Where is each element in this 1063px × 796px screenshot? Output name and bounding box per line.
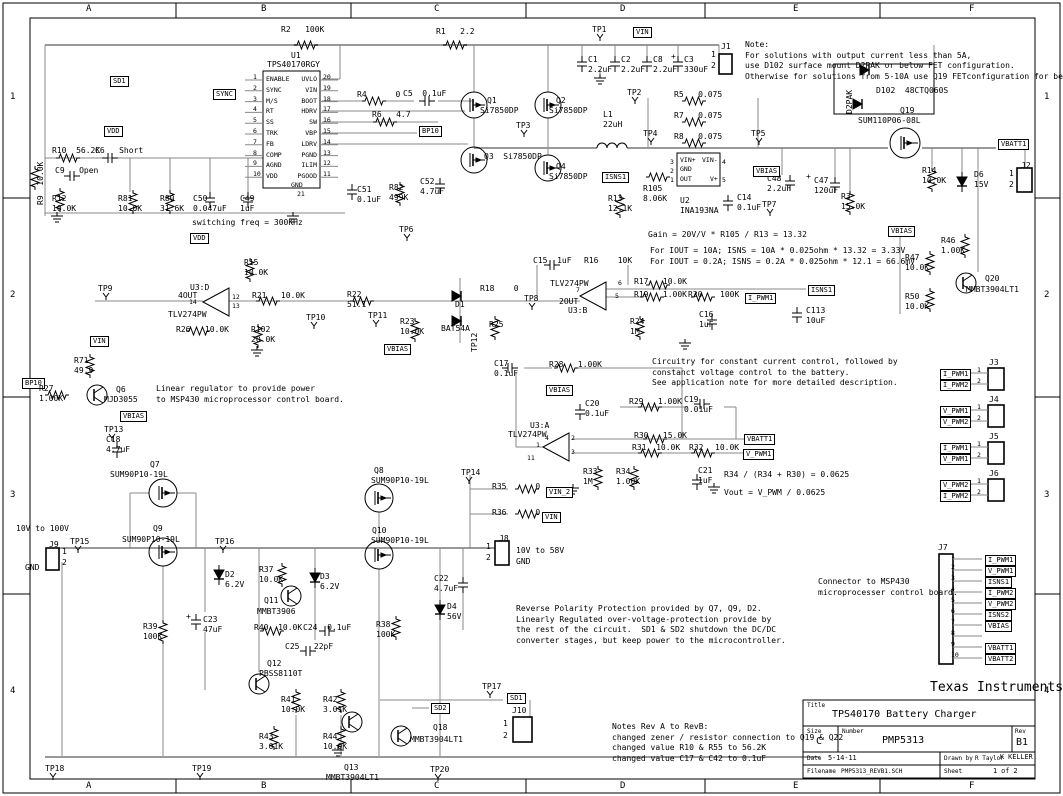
annotation-note: 10V to 58V GND [516, 546, 564, 567]
component-label: R18 0 [480, 284, 519, 294]
component-label: 3 [670, 159, 674, 166]
checked-by: K KELLER [1000, 753, 1033, 761]
component-label: Q2 [556, 96, 566, 106]
number-value: PMP5313 [882, 735, 924, 746]
annotation-note: Reverse Polarity Protection provided by … [516, 604, 786, 646]
frame-col-A: A [86, 4, 91, 14]
component-label: SUM90P10-19L [371, 536, 429, 546]
net-flag-vdd: VDD [190, 233, 209, 244]
component-label: Si7850DP [549, 106, 588, 116]
net-flag-bp10: BP10 [419, 126, 442, 137]
j4-pin-num: 2 [977, 415, 981, 422]
component-label: R3 15.0K [841, 192, 865, 211]
component-label: + [186, 612, 191, 622]
title-label: Title [807, 702, 825, 709]
annotation-note: Vout = V_PWM / 0.0625 [724, 488, 825, 499]
component-label: R2 100K [281, 25, 324, 35]
annotation-note: Circuitry for constant current control, … [652, 357, 898, 389]
net-flag-i_pwm2: I_PWM2 [940, 491, 971, 502]
component-label: 1 [503, 719, 508, 729]
component-label: C52 4.7uF [420, 177, 444, 196]
j7-pin-num: 5 [951, 597, 955, 604]
frame-col-D: D [620, 4, 625, 14]
component-label: R10 56.2K [52, 146, 100, 156]
component-label: 12 [232, 294, 240, 301]
annotation-note: GND [25, 563, 39, 574]
frame-row-4: 4 [10, 686, 15, 696]
component-label: D4 56V [447, 602, 461, 621]
annotation-note: Connector to MSP430 microprocesser contr… [818, 577, 958, 598]
component-label: C24 0.1uF [303, 623, 351, 633]
component-label: Q12 [267, 659, 281, 669]
component-label: SUM90P10-19L [122, 535, 180, 545]
testpoint-tp17: TP17 [482, 682, 501, 692]
component-label: R102 20.0K [251, 325, 275, 344]
component-label: + [671, 52, 676, 62]
component-label: BAT54A [441, 324, 470, 334]
component-label: Si7850DP [480, 106, 519, 116]
u1-pin-num: 5 [253, 117, 257, 124]
net-flag-vbias: VBIAS [985, 621, 1012, 632]
component-label: D102 48CTQ060S [876, 86, 948, 96]
component-label: 3 [571, 449, 575, 456]
connector-ref-j3: J3 [989, 358, 999, 368]
component-label: SUM110P06-08L [858, 116, 921, 126]
frame-row-1: 1 [1044, 92, 1049, 102]
u1-pin-name: SW [277, 119, 317, 126]
component-label: R27 1.00K [39, 384, 63, 403]
component-label: C113 10uF [806, 306, 825, 325]
j4-pin-num: 1 [977, 404, 981, 411]
net-flag-i_pwm2: I_PWM2 [940, 380, 971, 391]
component-label: Q13 [344, 763, 358, 773]
testpoint-tp4: TP4 [643, 129, 657, 139]
component-label: R9 10.0K [36, 162, 46, 205]
testpoint-tp9: TP9 [98, 284, 112, 294]
component-label: MMBT3904LT1 [326, 773, 379, 783]
frame-col-C: C [434, 781, 439, 791]
component-label: 1 [486, 542, 491, 552]
u1-pin-num: 6 [253, 128, 257, 135]
j7-pin-num: 4 [951, 586, 955, 593]
component-label: 1 [1009, 169, 1014, 179]
component-label: PBSS8110T [259, 669, 302, 679]
component-label: R12 10.0K [52, 194, 76, 213]
schematic-sheet: Texas Instruments Title TPS40170 Battery… [0, 0, 1063, 796]
net-flag-vin: VIN [90, 336, 109, 347]
component-label: J10 [512, 706, 526, 716]
net-flag-isns2: ISNS2 [985, 610, 1012, 621]
rev-label: Rev [1015, 728, 1026, 735]
u1-pin-name: LDRV [277, 141, 317, 148]
testpoint-tp19: TP19 [192, 764, 211, 774]
j3-pin-num: 1 [977, 367, 981, 374]
component-label: R39 100K [143, 622, 162, 641]
net-flag-v_pwm1: V_PWM1 [940, 406, 971, 417]
component-label: J8 [499, 534, 509, 544]
component-label: 100K [720, 290, 739, 300]
component-label: 13 [232, 303, 240, 310]
net-flag-v_pwm1: V_PWM1 [940, 454, 971, 465]
component-label: C15 1uF [533, 256, 572, 266]
component-label: U2 INA193NA [680, 196, 719, 215]
component-label: Q10 [372, 526, 386, 536]
component-label: 14 [189, 299, 197, 306]
component-label: TLV274PW [168, 310, 207, 320]
net-flag-i_pwm1: I_PWM1 [940, 443, 971, 454]
component-label: J2 [1021, 161, 1031, 171]
component-label: R37 10.0K [259, 565, 283, 584]
component-label: Q20 [985, 274, 999, 284]
testpoint-tp2: TP2 [627, 88, 641, 98]
component-label: C9 Open [55, 166, 98, 176]
component-label: GND [291, 182, 303, 189]
component-label: SUM90P10-19L [110, 470, 168, 480]
testpoint-tp13: TP13 [104, 425, 123, 435]
frame-col-B: B [261, 781, 266, 791]
u1-pin-num: 9 [253, 160, 257, 167]
u1-pin-num: 8 [253, 150, 257, 157]
net-flag-vdd: VDD [104, 126, 123, 137]
net-flag-v_pwm1: V_PWM1 [743, 449, 774, 460]
component-label: TLV274PW [550, 279, 589, 289]
component-label: MMBT3904LT1 [966, 285, 1019, 295]
component-label: 4 [722, 159, 726, 166]
u1-pin-num: 17 [323, 106, 331, 113]
component-label: C21 1uF [698, 466, 712, 485]
component-label: + [806, 172, 811, 182]
net-flag-i_pwm2: I_PWM2 [985, 588, 1016, 599]
testpoint-tp10: TP10 [306, 313, 325, 323]
schematic-title: TPS40170 Battery Charger [832, 709, 977, 720]
testpoint-tp3: TP3 [516, 121, 530, 131]
u1-pin-num: 15 [323, 128, 331, 135]
net-flag-vbatt1: VBATT1 [744, 434, 775, 445]
component-label: J9 [49, 540, 59, 550]
frame-col-F: F [969, 781, 974, 791]
j6-pin-num: 2 [977, 489, 981, 496]
component-label: 4 [545, 435, 549, 442]
component-label: R4 0 [357, 90, 400, 100]
frame-col-C: C [434, 4, 439, 14]
u1-pin-num: 4 [253, 106, 257, 113]
component-label: C51 0.1uF [357, 185, 381, 204]
component-label: C20 0.1uF [585, 399, 609, 418]
component-label: Q18 [433, 723, 447, 733]
testpoint-tp6: TP6 [399, 225, 413, 235]
filename-value: PMP5313_REVB1.SCH [841, 768, 902, 775]
testpoint-tp18: TP18 [45, 764, 64, 774]
net-flag-vin: VIN [542, 512, 561, 523]
testpoint-tp14: TP14 [461, 468, 480, 478]
component-label: R8 0.075 [674, 132, 722, 142]
frame-col-E: E [793, 781, 798, 791]
u1-pin-num: 18 [323, 96, 331, 103]
u1-pin-name: VDD [266, 173, 278, 180]
component-label: R35 0 [492, 482, 540, 492]
component-label: Q4 [556, 162, 566, 172]
component-label: R43 3.01K [259, 732, 283, 751]
component-label: 6 [618, 280, 622, 287]
net-flag-sd2: SD2 [431, 703, 450, 714]
component-label: 2 [670, 168, 674, 175]
u1-pin-num: 16 [323, 117, 331, 124]
component-label: R23 10.0K [400, 317, 424, 336]
component-label: C49 1uF [240, 194, 254, 213]
net-flag-vbias: VBIAS [888, 226, 915, 237]
component-label: R33 1M [583, 467, 597, 486]
u1-pin-name: PGND [277, 152, 317, 159]
annotation-note: Linear regulator to provide power to MSP… [156, 384, 344, 405]
component-label: D1 [455, 300, 465, 310]
component-label: 2 [571, 435, 575, 442]
component-label: R13 12.1K [608, 194, 632, 213]
frame-row-2: 2 [1044, 290, 1049, 300]
component-label: OUT [680, 176, 692, 183]
component-label: 7 [576, 287, 580, 294]
annotation-note: Gain = 20V/V * R105 / R13 = 13.32 [648, 230, 807, 241]
u1-pin-num: 20 [323, 74, 331, 81]
component-label: R22 51.1 [347, 290, 366, 309]
component-label: R28 1.00K [549, 360, 602, 370]
u1-pin-name: HDRV [277, 108, 317, 115]
net-flag-i_pwm1: I_PWM1 [940, 369, 971, 380]
component-label: R32 [689, 443, 703, 453]
component-label: D6 15V [974, 170, 988, 189]
u1-pin-num: 1 [253, 74, 257, 81]
u1-pin-num: 19 [323, 85, 331, 92]
net-flag-vbatt2: VBATT2 [985, 654, 1016, 665]
net-flag-vbias: VBIAS [120, 411, 147, 422]
component-label: R44 10.0K [323, 732, 347, 751]
j5-pin-num: 1 [977, 441, 981, 448]
u1-pin-num: 10 [253, 171, 261, 178]
net-flag-vbatt1: VBATT1 [998, 139, 1029, 150]
u1-pin-name: M/S [266, 98, 278, 105]
u1-pin-name: VBP [277, 130, 317, 137]
frame-row-3: 3 [10, 490, 15, 500]
frame-row-4: 4 [1044, 686, 1049, 696]
u1-pin-num: 11 [323, 171, 331, 178]
annotation-note: R34 / (R34 + R30) = 0.0625 [724, 470, 849, 481]
component-label: R31 10.0K [632, 443, 680, 453]
annotation-note: switching freq = 300KHz [192, 218, 303, 229]
u1-pin-num: 2 [253, 85, 257, 92]
component-label: GND [680, 166, 692, 173]
component-label: C19 0.01uF [684, 395, 713, 414]
component-label: 5 [615, 293, 619, 300]
frame-col-D: D [620, 781, 625, 791]
j7-pin-num: 2 [951, 564, 955, 571]
component-label: R40 10.0K [254, 623, 302, 633]
net-flag-v_pwm2: V_PWM2 [985, 599, 1016, 610]
component-label: C50 0.047uF [193, 194, 227, 213]
frame-col-A: A [86, 781, 91, 791]
u1-pin-name: SS [266, 119, 274, 126]
j7-pin-num: 10 [951, 652, 959, 659]
connector-ref-j6: J6 [989, 469, 999, 479]
component-label: R34 1.00K [616, 467, 640, 486]
component-label: R26 10.0K [176, 325, 229, 335]
net-flag-i_pwm1: I_PWM1 [985, 555, 1016, 566]
net-flag-isns1: ISNS1 [602, 172, 629, 183]
connector-ref-j5: J5 [989, 432, 999, 442]
component-label: D3 6.2V [320, 572, 339, 591]
testpoint-tp20: TP20 [430, 765, 449, 775]
component-label: 2 [62, 558, 67, 568]
sheet-label: Sheet [944, 768, 962, 775]
component-label: V+ [710, 176, 718, 183]
net-flag-vbias: VBIAS [753, 166, 780, 177]
drawn-label: Drawn by [944, 755, 973, 762]
testpoint-tp8: TP8 [524, 294, 538, 304]
component-label: D2PAK [845, 90, 855, 114]
component-label: MJD3055 [104, 395, 138, 405]
net-flag-sd1: SD1 [507, 693, 526, 704]
testpoint-tp16: TP16 [215, 537, 234, 547]
component-label: Q19 [900, 106, 914, 116]
component-label: Q11 [264, 596, 278, 606]
net-flag-vin: VIN [633, 27, 652, 38]
component-label: R30 15.0K [634, 431, 687, 441]
net-flag-v_pwm2: V_PWM2 [940, 480, 971, 491]
component-label: Q7 [150, 460, 160, 470]
frame-row-2: 2 [10, 290, 15, 300]
testpoint-tp5: TP5 [751, 129, 765, 139]
component-label: Q3 Si7850DP [484, 152, 542, 162]
j7-pin-num: 8 [951, 630, 955, 637]
u1-pin-name: TRK [266, 130, 278, 137]
component-label: SUM90P10-19L [371, 476, 429, 486]
net-flag-v_pwm1: V_PWM1 [985, 566, 1016, 577]
component-label: R41 10.0K [281, 695, 305, 714]
connector-ref-j4: J4 [989, 395, 999, 405]
component-label: 2 [711, 61, 716, 71]
net-flag-v_pwm2: V_PWM2 [940, 417, 971, 428]
u1-pin-num: 7 [253, 139, 257, 146]
component-label: R82 499K [389, 183, 408, 202]
component-label: R80 31.6K [160, 194, 184, 213]
j6-pin-num: 1 [977, 478, 981, 485]
component-label: U3:B [568, 306, 587, 316]
sheet-value: 1 of 2 [993, 767, 1018, 775]
component-label: R16 10K [584, 256, 632, 266]
component-label: R81 10.0K [118, 194, 142, 213]
testpoint-tp7: TP7 [762, 200, 776, 210]
component-label: C6 Short [95, 146, 143, 156]
component-label: Q9 [153, 524, 163, 534]
component-label: 2 [503, 731, 508, 741]
connector-ref-j7: J7 [938, 543, 948, 553]
component-label: 1 [62, 547, 67, 557]
component-label: C47 120uF [814, 176, 838, 195]
u1-pin-name: UVLO [277, 76, 317, 83]
j3-pin-num: 2 [977, 378, 981, 385]
net-flag-isns1: ISNS1 [808, 285, 835, 296]
u1-pin-num: 3 [253, 96, 257, 103]
component-label: C1 2.2uF [588, 55, 612, 74]
rev-value: B1 [1016, 737, 1028, 748]
component-label: R38 100K [376, 620, 395, 639]
component-label: L1 22uH [603, 110, 622, 129]
frame-col-F: F [969, 4, 974, 14]
component-label: C3 330uF [684, 55, 708, 74]
component-label: TP12 [470, 333, 480, 352]
testpoint-tp11: TP11 [368, 311, 387, 321]
component-label: R5 0.075 [674, 90, 722, 100]
component-label: R50 10.0K [905, 292, 929, 311]
j7-pin-num: 1 [951, 553, 955, 560]
j5-pin-num: 2 [977, 452, 981, 459]
u1-pin-num: 14 [323, 139, 331, 146]
component-label: VIN- [702, 157, 718, 164]
u1-pin-name: VIN [277, 87, 317, 94]
annotation-note: Note: For solutions with output current … [745, 40, 1063, 82]
component-label: R19 1.00K [634, 290, 687, 300]
component-label: D2 6.2V [225, 570, 244, 589]
net-flag-vbias: VBIAS [384, 344, 411, 355]
j7-pin-num: 7 [951, 619, 955, 626]
net-flag-sync: SYNC [213, 89, 236, 100]
component-label: R6 4.7 [372, 110, 411, 120]
component-label: C2 2.2uF [621, 55, 645, 74]
component-label: R46 1.00K [941, 236, 965, 255]
j7-pin-num: 6 [951, 608, 955, 615]
component-label: C14 0.1uF [737, 193, 761, 212]
component-label: 2 [1009, 180, 1014, 190]
u1-pin-name: ILIM [277, 162, 317, 169]
component-label: C22 4.7uF [434, 574, 458, 593]
component-label: R71 49.9 [74, 356, 93, 375]
component-label: Si7850DP [549, 172, 588, 182]
component-label: R25 [489, 320, 503, 330]
component-label: R24 1M [630, 317, 644, 336]
frame-row-1: 1 [10, 92, 15, 102]
component-label: R29 1.00K [629, 397, 682, 407]
u1-pin-name: FB [266, 141, 274, 148]
component-label: R1 2.2 [436, 27, 475, 37]
component-label: 10.0K [715, 443, 739, 453]
component-label: R105 8.06K [643, 184, 667, 203]
component-label: C16 1uF [699, 310, 713, 329]
j7-pin-num: 9 [951, 641, 955, 648]
net-flag-isns1: ISNS1 [985, 577, 1012, 588]
component-label: 1 [711, 50, 716, 60]
net-flag-sd1: SD1 [110, 76, 129, 87]
frame-col-E: E [793, 4, 798, 14]
component-label: C5 0.1uF [403, 89, 446, 99]
component-label: R21 10.0K [252, 291, 305, 301]
component-label: R42 3.01K [323, 695, 347, 714]
component-label: MMBT3906 [257, 607, 296, 617]
component-label: C23 47uF [203, 615, 222, 634]
frame-row-3: 3 [1044, 490, 1049, 500]
component-label: R47 10.0K [905, 253, 929, 272]
ic-part-u1: TPS40170RGY [267, 60, 320, 70]
component-label: 2 [486, 553, 491, 563]
u1-pin-name: BOOT [277, 98, 317, 105]
component-label: Q8 [374, 466, 384, 476]
component-label: MMBT3904LT1 [410, 735, 463, 745]
component-label: C17 0.1uF [494, 359, 518, 378]
u1-pin-name: RT [266, 108, 274, 115]
net-flag-vbias: VBIAS [546, 385, 573, 396]
component-label: C25 22pF [285, 642, 333, 652]
component-label: R36 0 [492, 508, 540, 518]
component-label: R7 0.075 [674, 111, 722, 121]
frame-col-B: B [261, 4, 266, 14]
u1-pin-num: 13 [323, 150, 331, 157]
